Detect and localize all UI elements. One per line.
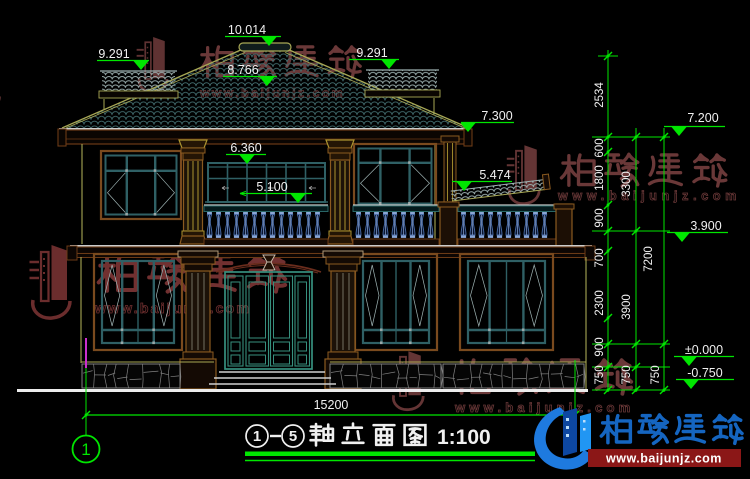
svg-text:1: 1 [81,440,90,459]
svg-text:5.474: 5.474 [479,168,510,182]
svg-text:600: 600 [594,138,606,157]
svg-text:www.baijunjz.com: www.baijunjz.com [557,189,741,203]
svg-text:2534: 2534 [594,82,606,108]
svg-text:7200: 7200 [643,246,655,272]
svg-text:3900: 3900 [621,294,633,320]
svg-text:5: 5 [289,428,297,445]
svg-text:-0.750: -0.750 [687,366,722,380]
svg-text:750: 750 [650,365,662,384]
svg-text:10.014: 10.014 [228,23,266,37]
svg-text:1800: 1800 [594,165,606,191]
svg-text:8.766: 8.766 [227,63,258,77]
svg-text:7.200: 7.200 [687,111,718,125]
svg-text:750: 750 [594,365,606,384]
svg-text:15200: 15200 [314,398,349,412]
svg-text:750: 750 [621,365,633,384]
svg-text:www.baijunjz.com: www.baijunjz.com [605,452,722,466]
svg-text:±0.000: ±0.000 [685,343,723,357]
svg-text:7.300: 7.300 [481,109,512,123]
svg-text:1: 1 [253,428,261,445]
svg-text:5.100: 5.100 [256,180,287,194]
svg-text:www.baijunjz.com: www.baijunjz.com [454,400,634,415]
svg-text:3300: 3300 [621,171,633,197]
svg-text:9.291: 9.291 [98,47,129,61]
svg-text:900: 900 [594,337,606,356]
svg-text:2300: 2300 [594,290,606,316]
svg-text:1:100: 1:100 [437,426,491,449]
svg-text:9.291: 9.291 [356,46,387,60]
svg-text:6.360: 6.360 [230,141,261,155]
svg-text:3.900: 3.900 [690,219,721,233]
svg-text:700: 700 [594,248,606,267]
svg-text:900: 900 [594,208,606,227]
